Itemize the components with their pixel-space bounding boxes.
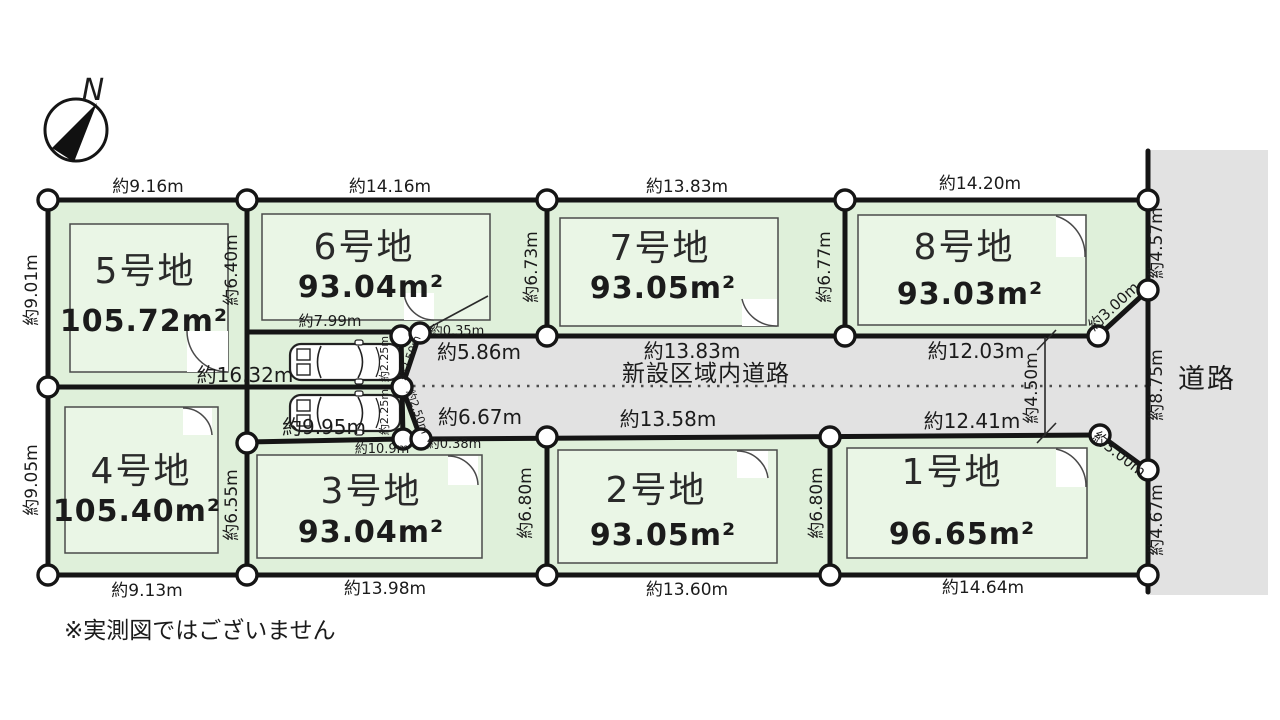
dim-inner-left-top: 約6.40m (222, 234, 242, 305)
dim-plot3-top: 約10.9m (355, 442, 410, 457)
dim-strip-mid: 約16.32m (197, 363, 294, 387)
dim-road-width: 約4.50m (1022, 352, 1042, 423)
dim-inner-left-bottom: 約6.55m (222, 469, 242, 540)
plot-7-label: 7号地 (610, 228, 711, 269)
dim-inner-right-bottom: 約6.80m (807, 467, 827, 538)
dim-bottom-1: 約13.98m (344, 579, 426, 599)
dim-junction-v-top: 約2.25m (377, 336, 391, 382)
plot-2-area: 93.05m² (590, 518, 736, 553)
dim-right-2: 約4.67m (1147, 484, 1167, 555)
dim-top-3: 約14.20m (939, 174, 1021, 194)
dim-road-top-0: 約5.86m (437, 340, 521, 364)
dim-inner-mid-top: 約6.73m (522, 231, 542, 302)
dim-inner-mid-bottom: 約6.80m (516, 467, 536, 538)
compass-icon: N (45, 73, 107, 162)
dim-road-bottom-0: 約6.67m (438, 405, 522, 429)
plot-1-area: 96.65m² (889, 517, 1035, 552)
plot-3-label: 3号地 (321, 471, 422, 512)
dim-inner-right-top: 約6.77m (815, 231, 835, 302)
dim-junction-v-bottom: 約2.25m (377, 389, 391, 435)
dim-top-1: 約14.16m (349, 177, 431, 197)
dim-step-bottom: 約0.38m (427, 437, 482, 452)
dim-right-0: 約4.57m (1147, 207, 1167, 278)
plot-6-label: 6号地 (314, 227, 415, 268)
dim-road-bottom-2: 約12.41m (924, 409, 1021, 433)
plot-4-area: 105.40m² (53, 494, 221, 529)
dim-bottom-3: 約14.64m (942, 578, 1024, 598)
plot-3-area: 93.04m² (298, 515, 444, 550)
dim-strip-bottom: 約9.95m (282, 415, 366, 439)
plot-6-area: 93.04m² (298, 270, 444, 305)
north-label: N (82, 73, 104, 108)
dim-right-1: 約8.75m (1147, 349, 1167, 420)
dim-left-0: 約9.01m (22, 254, 42, 325)
plot-5-area: 105.72m² (60, 304, 228, 339)
east-road-label: 道路 (1178, 364, 1236, 395)
dim-step-top: 約0.35m (430, 324, 485, 339)
dim-bottom-0: 約9.13m (111, 581, 182, 601)
internal-road-label: 新設区域内道路 (622, 361, 790, 387)
plot-8-label: 8号地 (914, 227, 1015, 268)
dim-bottom-2: 約13.60m (646, 580, 728, 600)
dim-road-top-1: 約13.83m (644, 339, 741, 363)
plot-1-label: 1号地 (902, 452, 1003, 493)
plot-2-label: 2号地 (606, 470, 707, 511)
dim-left-1: 約9.05m (22, 444, 42, 515)
dim-top-0: 約9.16m (112, 177, 183, 197)
dim-top-2: 約13.83m (646, 177, 728, 197)
dim-road-bottom-1: 約13.58m (620, 407, 717, 431)
plot-5-label: 5号地 (95, 251, 196, 292)
dim-road-top-2: 約12.03m (928, 339, 1025, 363)
dim-strip-top: 約7.99m (298, 312, 361, 330)
plot-8-area: 93.03m² (897, 277, 1043, 312)
plot-7-area: 93.05m² (590, 271, 736, 306)
site-plan-svg: N 5号地 105.72m² 6号地 93.04m² 7号地 93.05m² 8… (0, 0, 1280, 720)
site-plan: N 5号地 105.72m² 6号地 93.04m² 7号地 93.05m² 8… (0, 0, 1280, 720)
disclaimer-note: ※実測図ではございません (64, 617, 336, 644)
plot-4-label: 4号地 (91, 451, 192, 492)
